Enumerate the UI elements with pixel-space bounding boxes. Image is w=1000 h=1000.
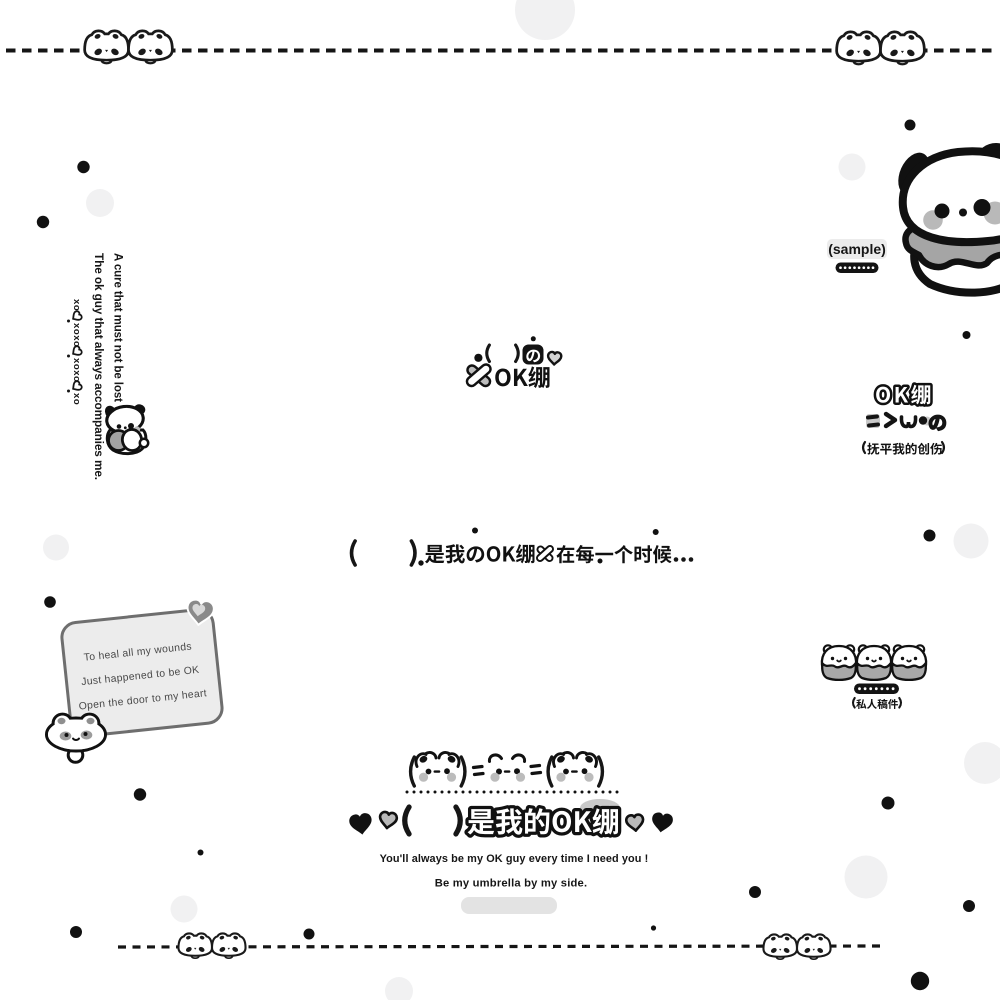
svg-text:A cure that must not be lost: A cure that must not be lost: [112, 253, 124, 402]
svg-text:You'll always be my OK guy eve: You'll always be my OK guy every time I …: [380, 853, 649, 865]
svg-text:Be my umbrella by my side.: Be my umbrella by my side.: [435, 878, 588, 890]
svg-text:(sample): (sample): [828, 241, 886, 257]
svg-text:The ok guy that always accompa: The ok guy that always accompanies me.: [92, 253, 106, 480]
